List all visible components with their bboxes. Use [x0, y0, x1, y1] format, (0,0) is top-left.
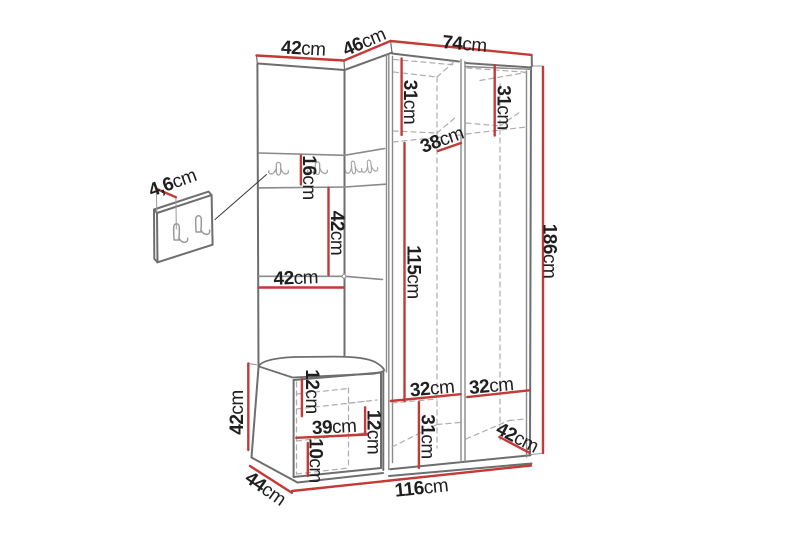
svg-text:74cm: 74cm: [441, 32, 487, 57]
svg-text:32cm: 32cm: [409, 377, 455, 402]
svg-text:42cm: 42cm: [281, 37, 327, 60]
svg-text:115cm: 115cm: [403, 245, 424, 298]
svg-text:16cm: 16cm: [298, 155, 319, 199]
svg-text:31cm: 31cm: [417, 414, 438, 458]
svg-text:32cm: 32cm: [468, 374, 514, 399]
svg-text:42cm: 42cm: [326, 211, 347, 255]
svg-text:12cm: 12cm: [301, 369, 322, 413]
svg-text:10cm: 10cm: [305, 438, 326, 482]
svg-text:186cm: 186cm: [539, 224, 560, 279]
svg-text:31cm: 31cm: [493, 85, 514, 129]
svg-text:39cm: 39cm: [311, 416, 357, 439]
svg-text:42cm: 42cm: [227, 390, 248, 434]
svg-text:12cm: 12cm: [363, 410, 384, 454]
svg-text:42cm: 42cm: [273, 267, 318, 290]
svg-text:31cm: 31cm: [399, 80, 420, 124]
